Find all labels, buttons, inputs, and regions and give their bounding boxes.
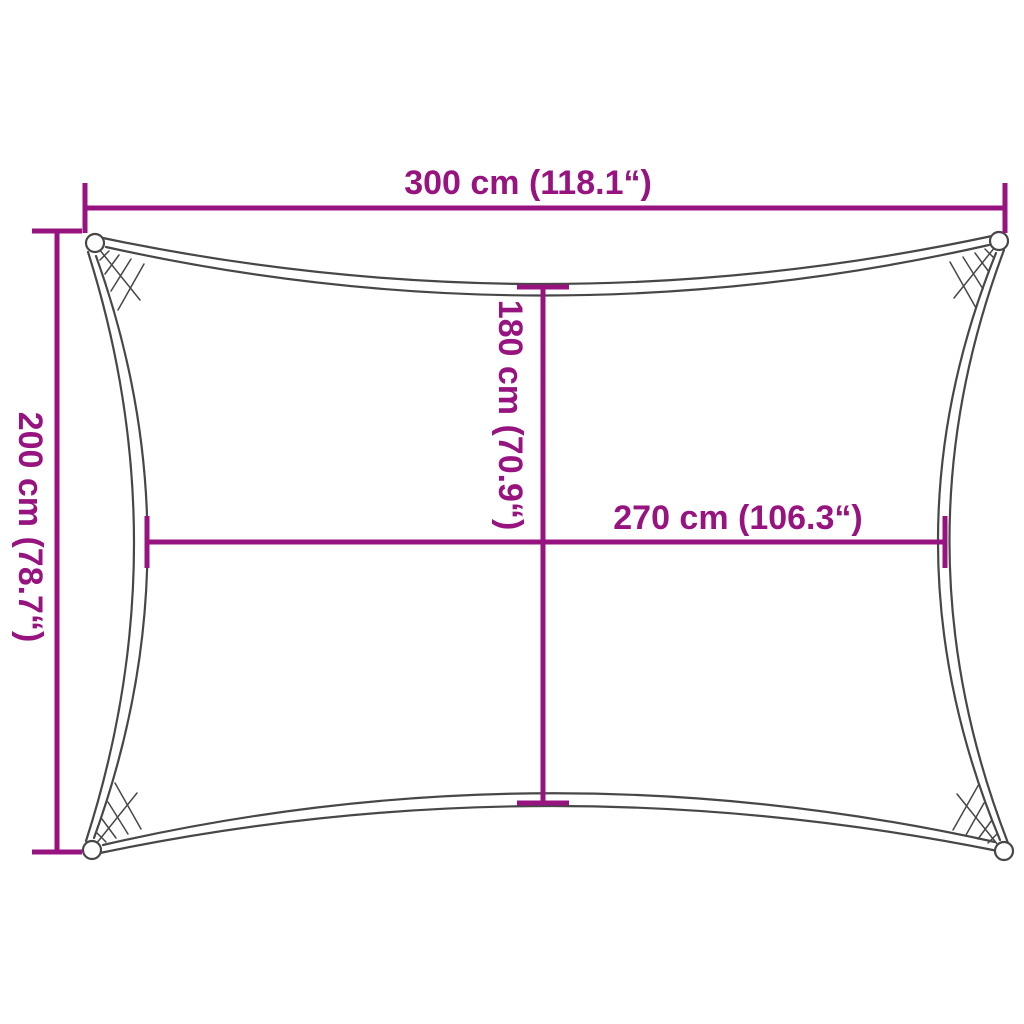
sail-left-edge-outer (86, 252, 134, 841)
sail-top-edge-outer (103, 236, 992, 284)
sail-bottom-edge-outer (100, 806, 998, 853)
dimension-label-horizontal-center: 270 cm (106.3“) (613, 499, 863, 537)
corner-grommet-ring-top-left (86, 234, 104, 252)
shade-sail-dimension-drawing: 300 cm (118.1“) 200 cm (78.7“) 180 cm (7… (0, 0, 1024, 1024)
sail-right-edge-outer (949, 250, 1008, 843)
dimension-label-vertical-center: 180 cm (70.9“) (491, 300, 529, 531)
sail-left-edge-inner (94, 256, 148, 838)
corner-grommet-ring-top-right (990, 232, 1008, 250)
dimension-label-left: 200 cm (78.7“) (11, 412, 49, 643)
corner-lacing-top-left (99, 249, 144, 310)
corner-grommet-ring-bottom-right (995, 842, 1013, 860)
corner-grommet-ring-bottom-left (83, 841, 101, 859)
dimension-diagram: 300 cm (118.1“) 200 cm (78.7“) 180 cm (7… (0, 0, 1024, 1024)
dimension-label-top: 300 cm (118.1“) (404, 164, 652, 202)
